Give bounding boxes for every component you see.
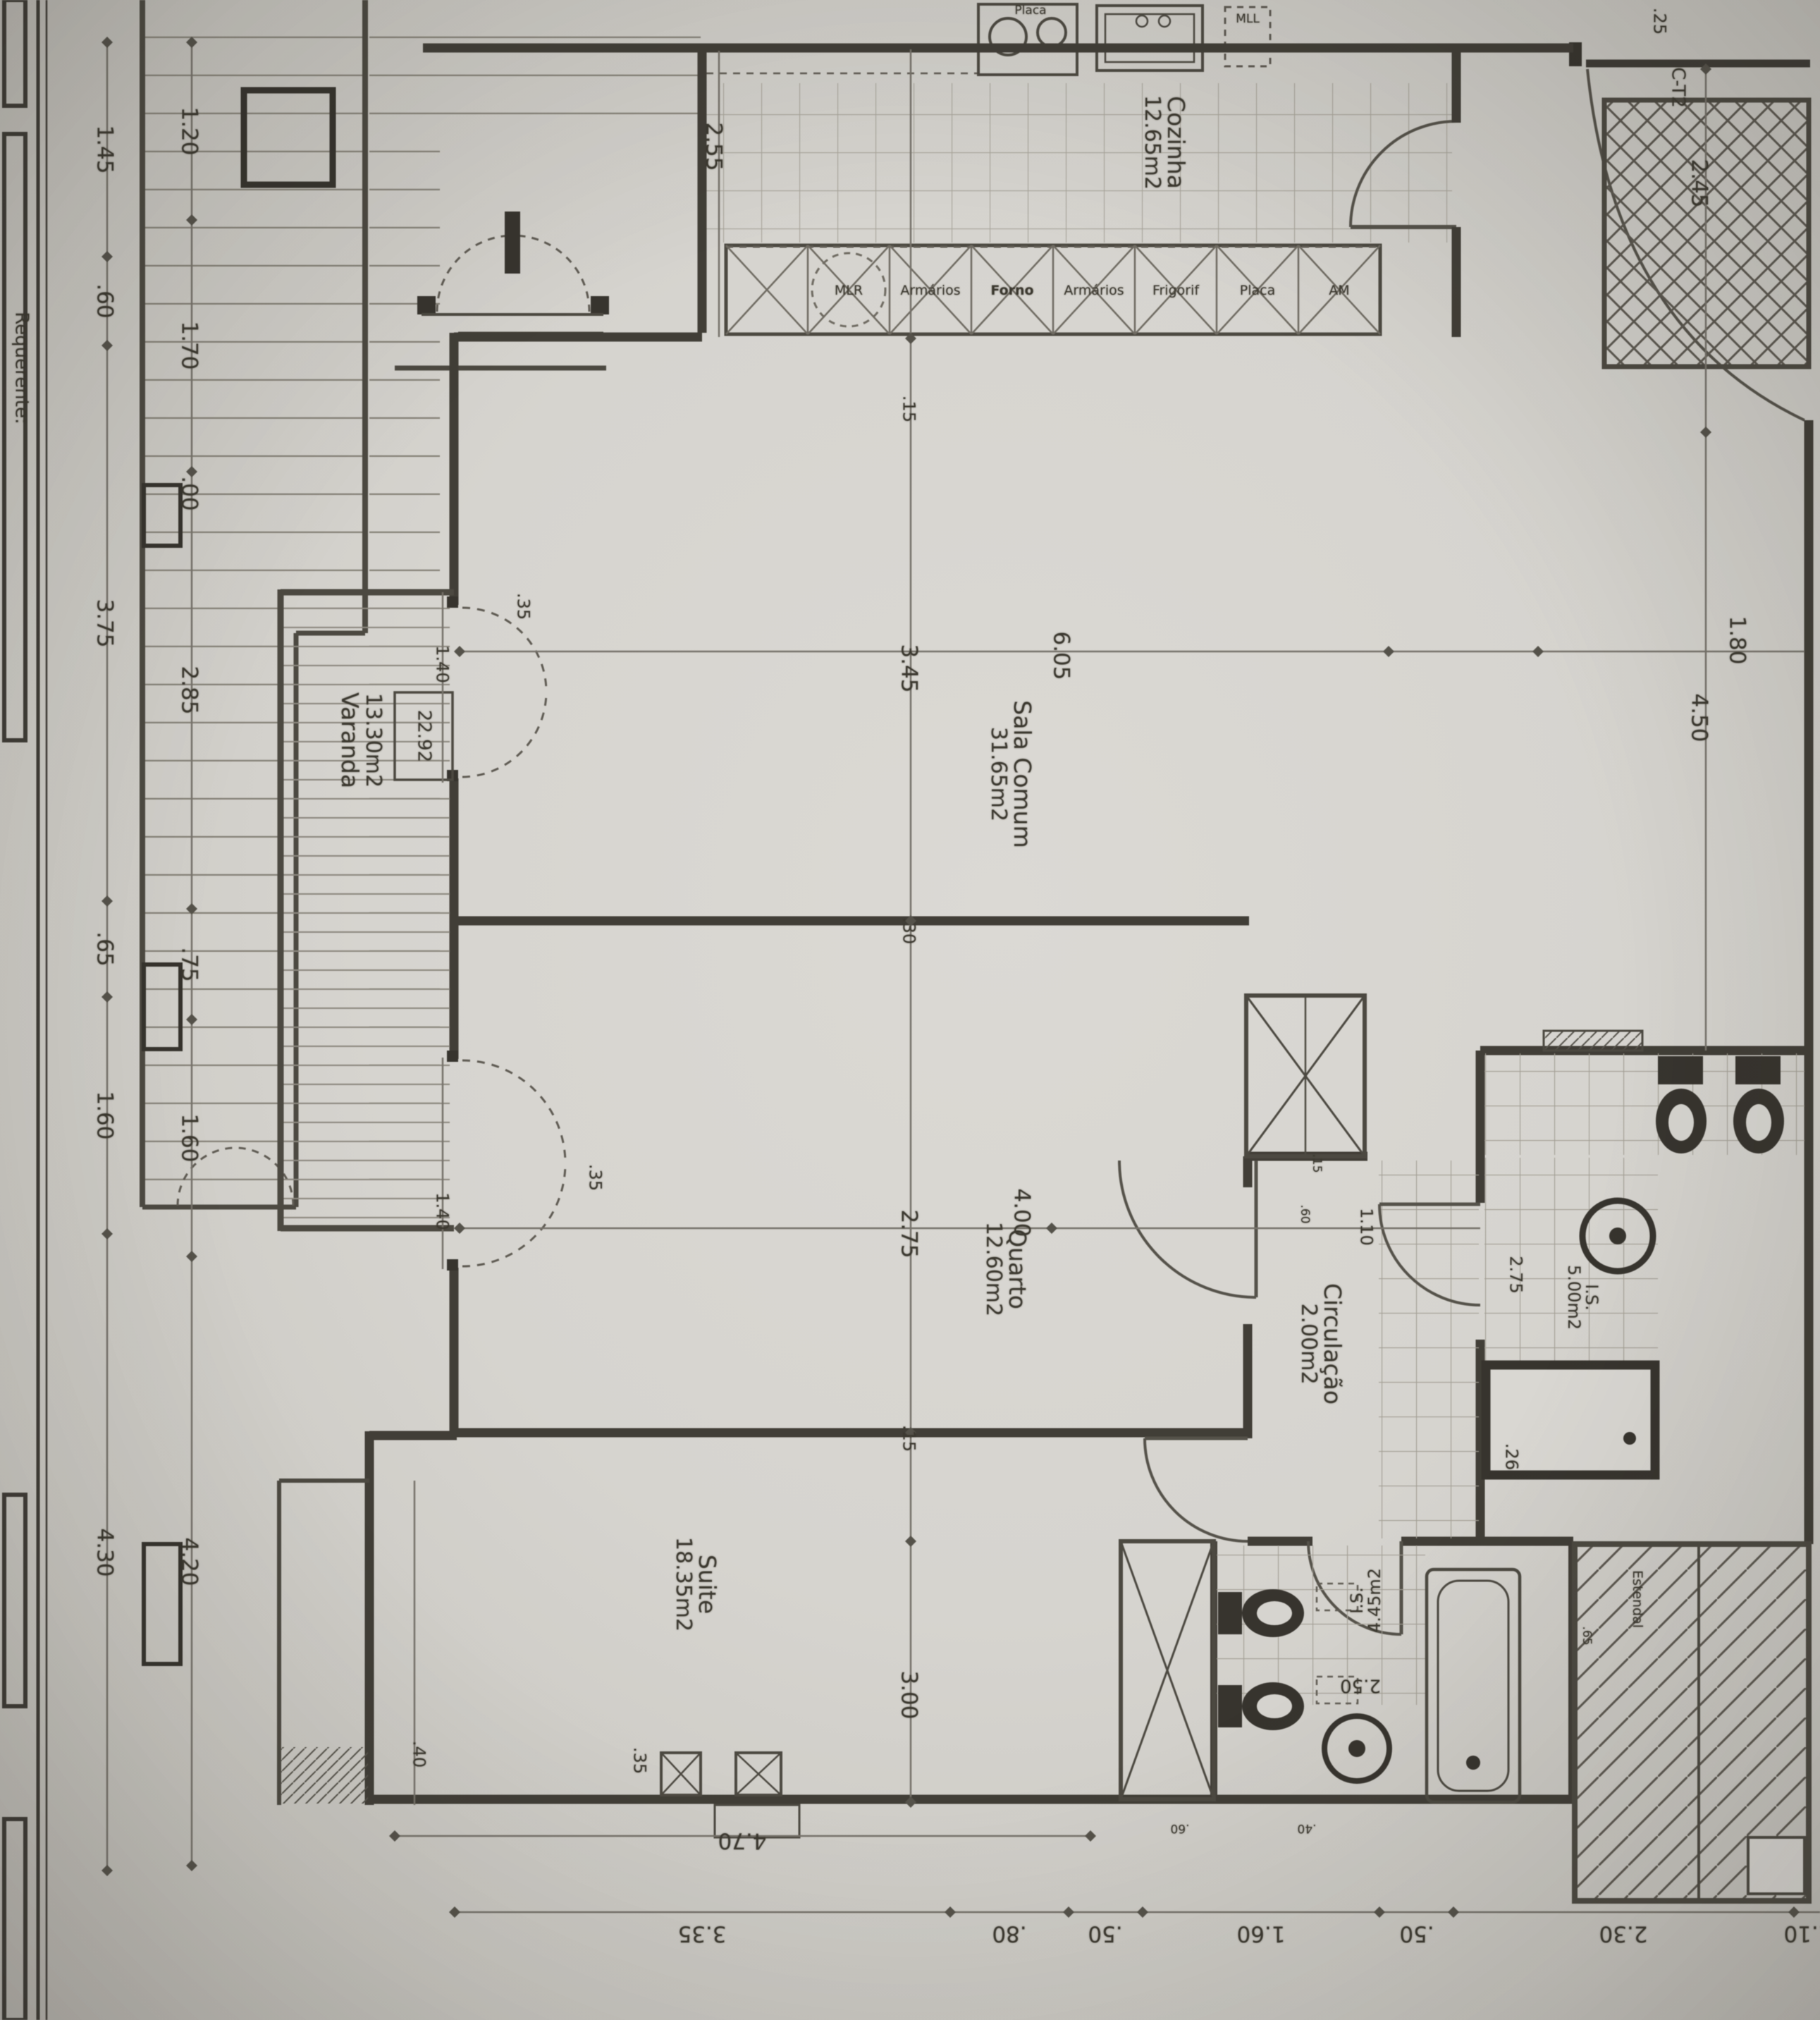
room-label-varanda: 13.30m2Varanda	[338, 692, 384, 788]
dim-interior: .30	[899, 917, 917, 944]
room-label-is2: I.S.4.45m2	[1348, 1568, 1384, 1633]
appliance-band	[726, 245, 1380, 334]
bathtub	[1427, 1569, 1520, 1802]
dim-left-inner: .00	[178, 476, 201, 510]
dim-interior: 4.70	[718, 1829, 766, 1852]
dim-interior: .35	[586, 1164, 603, 1191]
room-label-estendal: Estendal	[1630, 1570, 1644, 1628]
sink	[1097, 6, 1203, 71]
dim-interior: 1.10	[1357, 1208, 1375, 1245]
dim-left-inner: 1.70	[178, 321, 201, 369]
room-area: 12.60m2	[983, 1222, 1005, 1316]
room-name: Suite	[694, 1537, 719, 1632]
appliance-label: Armários	[1064, 284, 1124, 298]
dim-interior: .35	[514, 593, 531, 620]
varanda	[281, 589, 454, 1231]
room-name: I.S.	[1348, 1568, 1366, 1633]
dim-interior: 4.00	[1010, 1188, 1033, 1237]
dim-left-inner: 4.20	[178, 1537, 201, 1586]
toilet	[1656, 1056, 1707, 1153]
room-name: Sala Comum	[1009, 700, 1034, 848]
dim-interior: 2.50	[1340, 1675, 1381, 1694]
dim-left-inner: 1.20	[178, 106, 201, 155]
dim-interior: .40	[410, 1741, 427, 1768]
suite-balcony	[279, 1481, 369, 1805]
entry	[1569, 42, 1810, 420]
dim-interior: .60	[1170, 1821, 1189, 1834]
appliance-label: Armários	[900, 284, 960, 298]
room-area: 2.00m2	[1298, 1283, 1320, 1404]
room-label-cozinha: Cozinha12.65m2	[1141, 95, 1188, 190]
dim-left-outer: 3.75	[93, 599, 116, 647]
dim-interior: .35	[630, 1747, 648, 1774]
dim-interior: 2.75	[1506, 1256, 1524, 1293]
bidet-2	[1218, 1682, 1304, 1730]
level-marker: 22.92	[414, 710, 433, 762]
dim-interior: .15	[899, 396, 917, 422]
dim-interior: 6.05	[1050, 631, 1073, 680]
estendal-area	[1575, 1544, 1809, 1901]
dim-bottom: .80	[992, 1922, 1026, 1945]
appliance-label: Frigorif	[1152, 284, 1199, 298]
dim-interior: 2.45	[1687, 159, 1711, 207]
title-block-edge	[4, 0, 47, 2020]
dim-left-outer: 4.30	[93, 1528, 116, 1577]
room-area: 18.35m2	[672, 1537, 695, 1632]
suite-closet	[1121, 1541, 1214, 1799]
dim-interior: .60	[1298, 1204, 1310, 1223]
dim-bottom: 1.60	[1236, 1922, 1285, 1945]
room-area: 31.65m2	[988, 700, 1010, 848]
dim-interior: .15	[899, 1425, 917, 1452]
dim-interior: .26	[1502, 1443, 1520, 1470]
hob-label: Placa	[1014, 5, 1046, 18]
dim-interior: 1.40	[433, 1192, 450, 1230]
room-name: Cozinha	[1163, 95, 1188, 190]
dim-interior: 2.55	[702, 122, 725, 171]
room-label-sala: Sala Comum31.65m2	[988, 700, 1034, 848]
dim-left-inner: .75	[178, 947, 201, 981]
floor-plan-sheet: Cozinha12.65m2 Sala Comum31.65m2 13.30m2…	[0, 0, 1820, 2020]
dim-interior: 3.00	[897, 1670, 921, 1719]
dim-left-inner: 2.85	[178, 666, 201, 714]
dim-interior: .40	[1297, 1821, 1316, 1834]
dim-left-outer: .60	[93, 283, 116, 318]
dim-bottom: .50	[1088, 1922, 1122, 1945]
unit-code: C-T2	[1668, 67, 1687, 108]
dim-interior: .65	[1580, 1626, 1592, 1645]
bidet	[1733, 1056, 1784, 1153]
suite-door	[1145, 1438, 1248, 1541]
dim-left-inner: 1.60	[178, 1113, 201, 1162]
room-label-is1: I.S.5.00m2	[1565, 1265, 1600, 1330]
requester-label: Requerente:	[11, 312, 30, 424]
dim-interior: .25	[1650, 8, 1668, 35]
dim-interior: 1.80	[1726, 616, 1749, 664]
dim-bottom: .50	[1399, 1922, 1434, 1945]
dim-left-outer: 1.45	[93, 125, 116, 173]
walls	[369, 44, 1809, 1805]
circulacao-floor	[1379, 1161, 1479, 1538]
room-name: I.S.	[1582, 1265, 1600, 1330]
appliance-label: Forno	[990, 284, 1033, 298]
dim-left-outer: 1.60	[93, 1091, 116, 1139]
appliance-label: Placa	[1240, 284, 1275, 298]
dim-interior: 3.45	[897, 644, 921, 692]
dim-interior: 4.50	[1687, 693, 1711, 742]
bathroom-1	[1484, 1031, 1804, 1475]
dim-interior: 1.40	[433, 645, 450, 682]
quarto-closet	[1246, 996, 1365, 1156]
room-area: 12.65m2	[1141, 95, 1164, 190]
balcony-doors	[462, 608, 565, 1266]
room-area: 4.45m2	[1366, 1568, 1384, 1633]
appliance-label: AM	[1329, 284, 1349, 298]
entry-column	[505, 212, 520, 274]
room-name: Circulação	[1320, 1283, 1344, 1404]
toilet-2	[1218, 1589, 1304, 1637]
dim-bottom: 1.10	[1783, 1922, 1820, 1945]
room-label-suite: Suite18.35m2	[672, 1537, 719, 1632]
dim-bottom: 3.35	[677, 1922, 726, 1945]
dim-left-outer: .65	[93, 931, 116, 966]
floor-plan-photo: Cozinha12.65m2 Sala Comum31.65m2 13.30m2…	[0, 0, 1820, 2020]
room-label-circulacao: Circulação2.00m2	[1298, 1283, 1344, 1404]
dishwasher-label: MLL	[1236, 13, 1260, 26]
room-name: Varanda	[338, 692, 362, 788]
dim-bottom: 2.30	[1599, 1922, 1647, 1945]
dim-interior: 2.75	[897, 1209, 921, 1258]
appliance-label: MLR	[835, 284, 863, 298]
dim-interior: .15	[1310, 1153, 1322, 1173]
washbasin-2	[1324, 1716, 1389, 1781]
room-area: 13.30m2	[362, 692, 385, 788]
room-area: 5.00m2	[1565, 1265, 1582, 1330]
